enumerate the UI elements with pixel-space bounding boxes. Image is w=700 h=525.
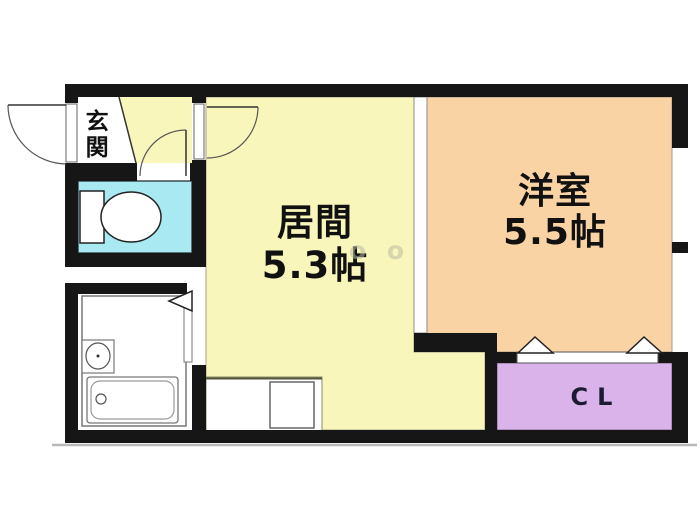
bathtub-outline <box>87 377 178 423</box>
wall-bath-top <box>65 283 187 294</box>
wall-hall-top <box>192 97 206 103</box>
watermark-text: o o <box>349 236 410 265</box>
western-room-label: 洋室 5.5帖 <box>470 171 640 253</box>
kitchen-sink-icon <box>270 382 314 428</box>
entrance-door-panel <box>66 104 77 162</box>
sliding-partition-door <box>414 97 427 333</box>
wall-closet-sill-left <box>497 352 517 363</box>
wall-toilet-top-right <box>190 163 206 181</box>
wall-closet-left <box>485 352 497 430</box>
wall-right-b <box>672 352 688 443</box>
wall-top <box>65 84 688 97</box>
western-room-size: 5.5帖 <box>470 212 640 253</box>
wall-right-a <box>672 84 688 148</box>
wall-left-c <box>65 283 78 442</box>
entrance-door-swing-arc <box>8 105 66 164</box>
wall-toilet-bottom <box>65 253 206 267</box>
western-room-name: 洋室 <box>470 171 640 212</box>
wall-bath-right <box>192 365 206 430</box>
wall-left-a <box>65 84 78 103</box>
wall-toilet-top-left <box>65 163 137 181</box>
wall-living-closet-bar <box>414 333 497 352</box>
genkan-label: 玄関 <box>82 109 106 161</box>
toilet-bowl-icon <box>101 192 161 242</box>
wall-right-pier <box>672 242 688 253</box>
wall-bottom <box>65 430 688 443</box>
closet-label: CL <box>558 383 634 411</box>
wash-basin-drain-icon <box>97 355 100 358</box>
living-door-panel <box>194 104 204 159</box>
floor-plan: 玄関 居間 5.3帖 洋室 5.5帖 CL o o <box>0 0 700 525</box>
